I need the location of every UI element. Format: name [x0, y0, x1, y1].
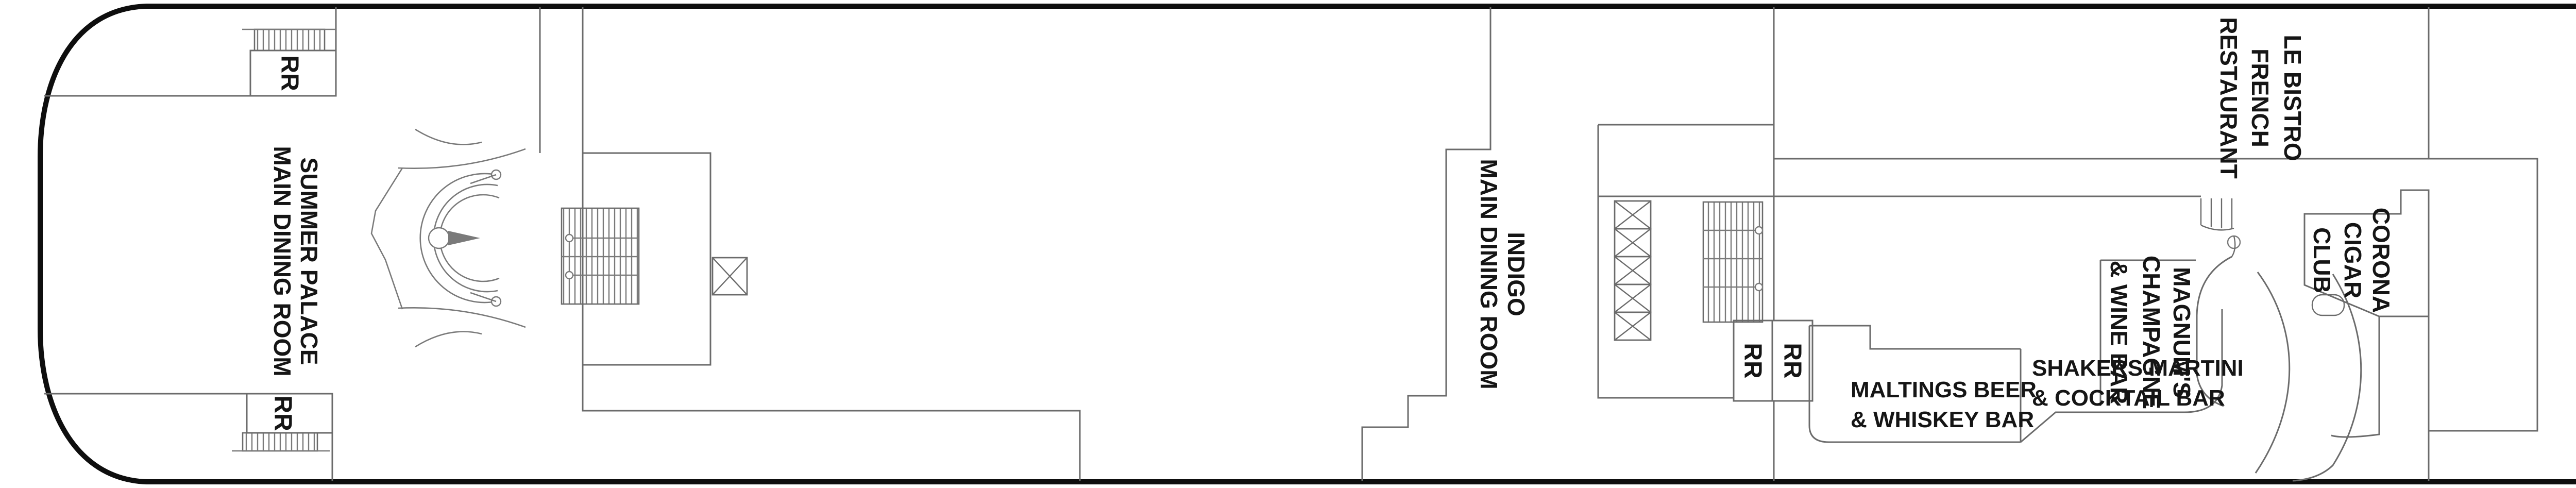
svg-text:RR: RR	[1739, 343, 1767, 378]
svg-text:INDIGO: INDIGO	[1503, 232, 1530, 316]
deck-plan: SUMMER PALACE MAIN DINING ROOM RR RR IND…	[0, 0, 2576, 488]
stern-stair-top-icon	[242, 29, 336, 51]
svg-text:& WHISKEY BAR: & WHISKEY BAR	[1851, 407, 2034, 432]
svg-text:MAIN DINING ROOM: MAIN DINING ROOM	[269, 146, 296, 376]
svg-text:RR: RR	[276, 55, 303, 91]
svg-text:LE BISTRO: LE BISTRO	[2279, 35, 2306, 161]
aft-elevator-icon	[713, 258, 747, 295]
svg-text:SHAKERS MARTINI: SHAKERS MARTINI	[2032, 356, 2244, 381]
svg-text:RESTAURANT: RESTAURANT	[2215, 17, 2242, 178]
midship-elevator-bank-icon	[1615, 201, 1651, 340]
svg-text:FRENCH: FRENCH	[2247, 48, 2274, 147]
svg-text:CORONA: CORONA	[2368, 208, 2395, 313]
svg-text:SUMMER PALACE: SUMMER PALACE	[296, 158, 323, 365]
stern-stair-bottom-icon	[232, 433, 330, 451]
svg-text:RR: RR	[1779, 343, 1806, 378]
label-rr-mid-left: RR	[1739, 343, 1767, 378]
svg-text:CHAMPAGNE: CHAMPAGNE	[2138, 256, 2165, 409]
svg-text:MAIN DINING ROOM: MAIN DINING ROOM	[1476, 159, 1502, 389]
svg-text:RR: RR	[269, 395, 297, 431]
deck-plan-page: SUMMER PALACE MAIN DINING ROOM RR RR IND…	[0, 0, 2576, 488]
svg-text:& WINE BAR: & WINE BAR	[2106, 261, 2132, 405]
label-rr-aft-top: RR	[276, 55, 303, 91]
midship-staircase-icon	[1703, 202, 1762, 322]
label-summer-palace-main-dining-room: SUMMER PALACE MAIN DINING ROOM	[269, 146, 323, 376]
svg-text:CIGAR: CIGAR	[2340, 222, 2366, 298]
label-rr-aft-bottom: RR	[269, 395, 297, 431]
label-rr-mid-right: RR	[1779, 343, 1806, 378]
aft-staircase-icon	[562, 208, 639, 304]
svg-text:MALTINGS BEER: MALTINGS BEER	[1851, 377, 2037, 402]
label-magnums-bar: MAGNUM'S CHAMPAGNE & WINE BAR	[2106, 256, 2195, 409]
svg-text:MAGNUM'S: MAGNUM'S	[2168, 267, 2195, 398]
svg-text:CLUB: CLUB	[2309, 227, 2335, 293]
